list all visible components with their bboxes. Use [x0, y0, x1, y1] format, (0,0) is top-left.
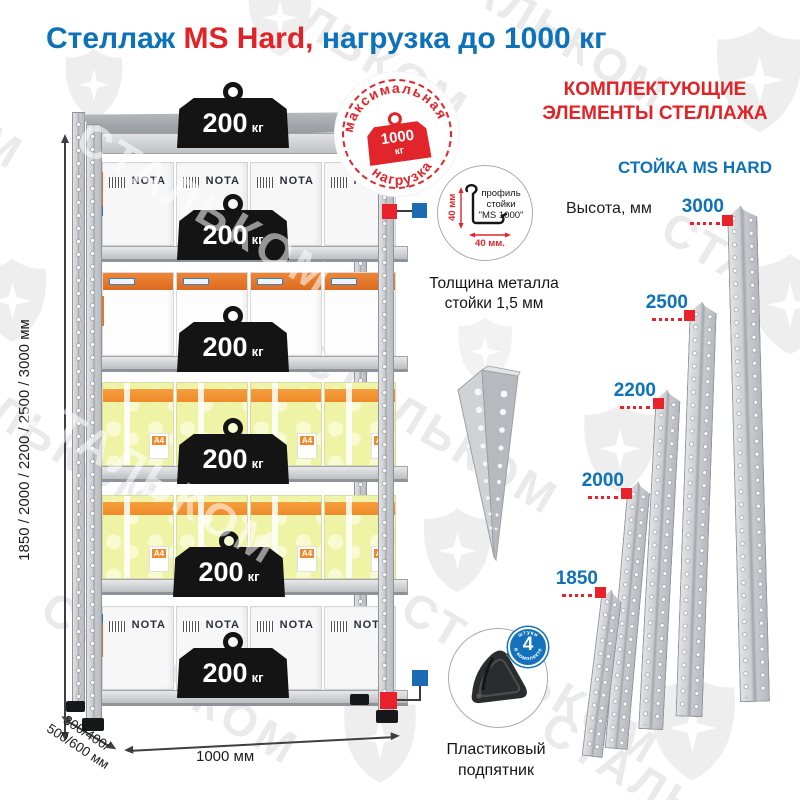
shelf-load-unit: кг: [252, 670, 264, 685]
weight-icon: 200кг: [177, 306, 289, 372]
components-header-line1: КОМПЛЕКТУЮЩИЕ: [520, 78, 790, 102]
shelf-load-value: 200: [203, 444, 248, 475]
height-dimension-label: 1850 / 2000 / 2200 / 2500 / 3000 мм: [16, 138, 33, 742]
arrow-right-icon: [391, 732, 400, 740]
paper-box-yellow: A4: [102, 382, 174, 466]
width-dimension-label: 1000 мм: [196, 748, 254, 765]
stamp-load-unit: кг: [394, 146, 404, 157]
shelf-load-value: 200: [203, 108, 248, 139]
dotted-leader: [562, 594, 592, 597]
rack-post-front-left: [86, 124, 102, 722]
components-header-line2: ЭЛЕМЕНТЫ СТЕЛЛАЖА: [520, 102, 790, 126]
box-brand-label: NOTA: [206, 619, 240, 631]
barcode-icon: [109, 621, 125, 632]
box-lid: [103, 273, 173, 290]
infographic-canvas: СТАЛЬКОМ СТАЛЬКОМ СТАЛЬКОМ СТАЛЬКОМ СТАЛ…: [0, 0, 800, 800]
post-height-label: Высота, мм: [566, 200, 652, 218]
profile-text-line2: стойки: [486, 199, 515, 210]
corner-post-3d-image: [448, 362, 540, 567]
perforation-holes: [731, 212, 749, 698]
dotted-leader: [620, 406, 650, 409]
barcode-icon: [183, 621, 199, 632]
stamp-weight-icon: 1000кг: [363, 108, 432, 168]
barcode-icon: [331, 621, 347, 632]
svg-text:штуки: штуки: [517, 630, 539, 639]
rack-foot: [350, 694, 369, 705]
box-lid: [251, 273, 321, 290]
box-band: [177, 502, 247, 515]
marker-red-square: [380, 692, 397, 709]
box-strap: [124, 496, 130, 578]
marker-blue-square: [412, 203, 427, 218]
marker-red-square: [684, 310, 695, 321]
profile-text-line1: профиль: [481, 188, 520, 199]
paper-box-yellow: A4: [102, 495, 174, 579]
arrow-up-icon: [61, 134, 69, 143]
box-band: [177, 389, 247, 402]
shelf-load-unit: кг: [252, 120, 264, 135]
marker-blue-square: [412, 670, 428, 686]
title-part-3: нагрузка до 1000 кг: [313, 22, 606, 55]
dotted-leader: [652, 318, 682, 321]
weight-icon: 200кг: [177, 82, 289, 148]
post-height-2500: 2500: [636, 292, 688, 314]
arrow-left-icon: [124, 746, 133, 754]
quantity-badge: 4 штуки в комплекте: [508, 627, 548, 667]
connector-line: [397, 699, 421, 701]
paper-size-label: A4: [149, 433, 169, 459]
perforation-holes: [90, 130, 95, 718]
box-band: [251, 502, 321, 515]
profile-caption: Толщина металла стойки 1,5 мм: [414, 274, 574, 314]
shelf-load-unit: кг: [248, 569, 260, 584]
profile-text-line3: "MS 1000": [479, 210, 524, 221]
box-brand-label: NOTA: [132, 175, 166, 187]
weight-icon: 200кг: [173, 531, 285, 597]
page-title: Стеллаж MS Hard, нагрузка до 1000 кг: [46, 22, 607, 56]
components-header: КОМПЛЕКТУЮЩИЕ ЭЛЕМЕНТЫ СТЕЛЛАЖА: [520, 78, 790, 126]
marker-red-square: [653, 398, 664, 409]
foot-caption-line2: подпятник: [412, 761, 580, 782]
dotted-leader: [690, 222, 720, 225]
rack-post-back-left: [72, 112, 85, 705]
dotted-leader: [588, 496, 618, 499]
weight-icon: 200кг: [177, 632, 289, 698]
shelf-load-value: 200: [203, 658, 248, 689]
paper-box-nota: NOTA: [102, 162, 174, 246]
box-brand-label: NOTA: [132, 619, 166, 631]
shield-watermark-icon: [62, 46, 126, 122]
components-subheader: СТОЙКА MS HARD: [595, 158, 795, 178]
height-dimension-line: [64, 142, 66, 734]
box-band: [103, 502, 173, 515]
box-brand-label: NOTA: [280, 619, 314, 631]
svg-text:в комплекте: в комплекте: [512, 647, 544, 662]
post-height-1850: 1850: [546, 568, 598, 590]
paper-size-label: A4: [297, 546, 317, 572]
title-part-1: Стеллаж: [46, 22, 183, 55]
box-strap: [124, 383, 130, 465]
badge-arc-text: штуки в комплекте: [510, 629, 546, 665]
marker-red-square: [621, 488, 632, 499]
shelf-load-unit: кг: [252, 232, 264, 247]
box-strap: [346, 383, 352, 465]
profile-caption-line2: стойки 1,5 мм: [414, 294, 574, 314]
post-height-2000: 2000: [572, 470, 624, 492]
rack-foot: [82, 718, 104, 731]
rack-foot: [66, 701, 85, 712]
profile-caption-line1: Толщина металла: [414, 274, 574, 294]
foot-caption-line1: Пластиковый: [412, 740, 580, 761]
paper-size-label: A4: [297, 433, 317, 459]
badge-text-top: штуки: [517, 630, 539, 639]
rack-foot: [376, 710, 398, 723]
component-post-2500: [676, 302, 717, 718]
profile-dim-vertical: 40 мм: [447, 194, 458, 221]
connector-line: [419, 686, 421, 701]
max-load-stamp: максимальная нагрузка 1000кг: [327, 64, 467, 204]
shelf-load-value: 200: [203, 332, 248, 363]
box-lid: [177, 273, 247, 290]
marker-red-square: [722, 215, 733, 226]
shelf-load-unit: кг: [252, 456, 264, 471]
foot-caption: Пластиковый подпятник: [412, 740, 580, 782]
box-brand-label: NOTA: [280, 175, 314, 187]
stamp-load-value: 1000: [380, 127, 415, 146]
shelf-load-value: 200: [199, 557, 244, 588]
marker-red-square: [595, 587, 606, 598]
shelf-load-value: 200: [203, 220, 248, 251]
paper-box-orange: [102, 272, 174, 356]
shelf-load-unit: кг: [252, 344, 264, 359]
weight-icon: 200кг: [177, 418, 289, 484]
box-band: [103, 389, 173, 402]
profile-dim-horizontal: 40 мм.: [475, 238, 505, 249]
box-band: [251, 389, 321, 402]
title-part-2: MS Hard,: [183, 22, 313, 55]
box-brand-label: NOTA: [206, 175, 240, 187]
barcode-icon: [257, 177, 273, 188]
marker-red-square: [382, 204, 397, 219]
post-height-3000: 3000: [672, 196, 724, 218]
weight-icon: 200кг: [177, 194, 289, 260]
post-height-2200: 2200: [604, 380, 656, 402]
barcode-icon: [183, 177, 199, 188]
box-strap: [346, 496, 352, 578]
perforation-holes: [76, 118, 81, 701]
badge-text-bottom: в комплекте: [512, 647, 544, 662]
barcode-icon: [109, 177, 125, 188]
barcode-icon: [257, 621, 273, 632]
paper-box-nota: NOTA: [102, 606, 174, 690]
paper-size-label: A4: [149, 546, 169, 572]
